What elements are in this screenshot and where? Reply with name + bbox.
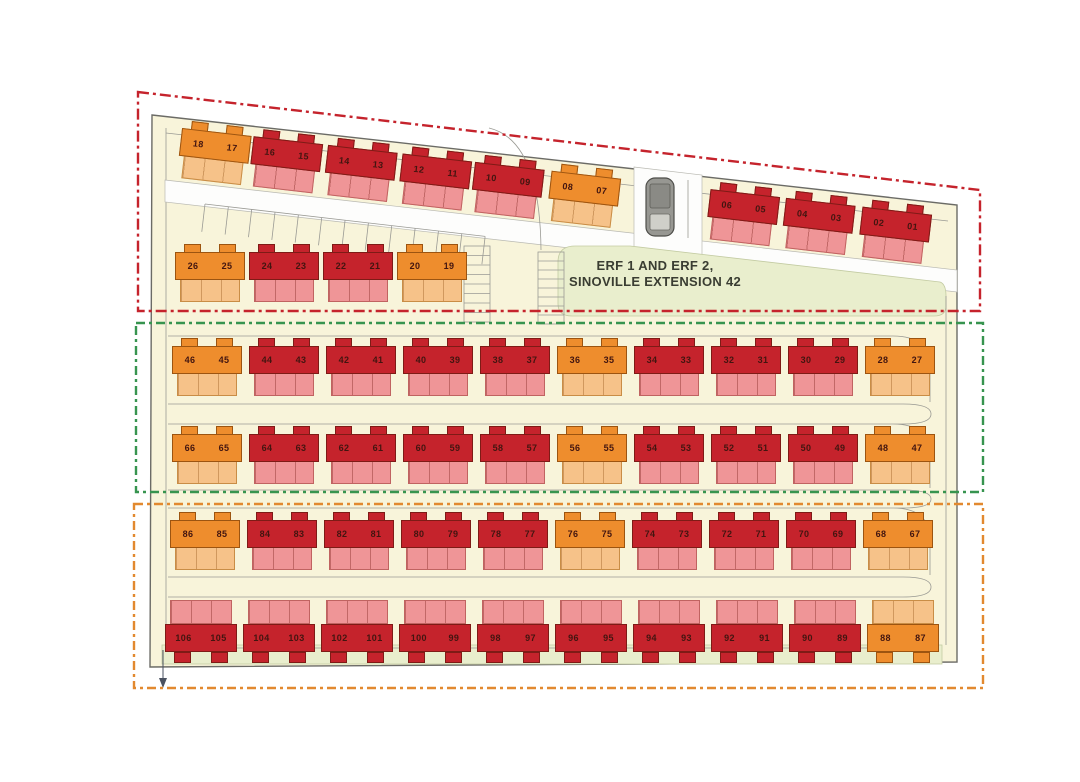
unit-number: 60 xyxy=(416,443,427,453)
unit-roof: 5453 xyxy=(634,434,704,462)
duplex-block-16-15: 1615 xyxy=(248,128,324,196)
unit-number: 69 xyxy=(833,529,844,539)
unit-roof: 106105 xyxy=(165,624,237,652)
unit-yard xyxy=(485,461,545,484)
duplex-block-06-05: 0605 xyxy=(705,181,781,249)
roof-bump-icon xyxy=(564,652,581,663)
unit-number: 10 xyxy=(485,172,497,183)
duplex-block-26-25: 2625 xyxy=(175,244,245,304)
unit-yard xyxy=(482,600,544,624)
duplex-block-46-45: 4645 xyxy=(172,338,242,398)
duplex-block-02-01: 0201 xyxy=(857,199,933,267)
unit-roof: 4645 xyxy=(172,346,242,374)
duplex-block-68-67: 6867 xyxy=(863,512,933,572)
unit-number: 65 xyxy=(219,443,230,453)
unit-number: 72 xyxy=(722,529,733,539)
unit-roof: 2625 xyxy=(175,252,245,280)
unit-roof: 6665 xyxy=(172,434,242,462)
unit-number: 102 xyxy=(331,633,347,643)
unit-number: 94 xyxy=(646,633,657,643)
erf-label-line2: SINOVILLE EXTENSION 42 xyxy=(505,274,805,290)
unit-number: 103 xyxy=(288,633,304,643)
unit-yard xyxy=(485,373,545,396)
unit-number: 18 xyxy=(192,138,204,149)
duplex-block-82-81: 8281 xyxy=(324,512,394,572)
duplex-block-78-77: 7877 xyxy=(478,512,548,572)
unit-number: 71 xyxy=(756,529,767,539)
duplex-block-86-85: 8685 xyxy=(170,512,240,572)
unit-yard xyxy=(254,279,314,302)
unit-number: 75 xyxy=(602,529,613,539)
duplex-block-40-39: 4039 xyxy=(403,338,473,398)
duplex-block-24-23: 2423 xyxy=(249,244,319,304)
roof-bump-icon xyxy=(720,652,737,663)
unit-roof: 8483 xyxy=(247,520,317,548)
roof-bump-icon xyxy=(876,652,893,663)
unit-number: 50 xyxy=(801,443,812,453)
unit-yard xyxy=(483,547,543,570)
unit-number: 34 xyxy=(647,355,658,365)
unit-number: 84 xyxy=(260,529,271,539)
unit-number: 83 xyxy=(294,529,305,539)
duplex-block-20-19: 2019 xyxy=(397,244,467,304)
unit-roof: 3231 xyxy=(711,346,781,374)
duplex-block-100-99: 10099 xyxy=(399,598,471,658)
unit-number: 93 xyxy=(681,633,692,643)
unit-number: 07 xyxy=(596,185,608,196)
unit-number: 11 xyxy=(447,168,458,179)
unit-yard xyxy=(175,547,235,570)
unit-number: 82 xyxy=(337,529,348,539)
unit-yard xyxy=(791,547,851,570)
unit-number: 79 xyxy=(448,529,459,539)
unit-number: 12 xyxy=(413,164,425,175)
duplex-block-64-63: 6463 xyxy=(249,426,319,486)
roof-bump-icon xyxy=(445,652,462,663)
duplex-block-52-51: 5251 xyxy=(711,426,781,486)
housing-row-row1L: 181716151413121110090807 xyxy=(176,120,183,182)
unit-number: 31 xyxy=(758,355,769,365)
unit-number: 58 xyxy=(493,443,504,453)
duplex-block-66-65: 6665 xyxy=(172,426,242,486)
erf-label: ERF 1 AND ERF 2, SINOVILLE EXTENSION 42 xyxy=(505,258,805,290)
duplex-block-76-75: 7675 xyxy=(555,512,625,572)
duplex-block-30-29: 3029 xyxy=(788,338,858,398)
unit-yard xyxy=(254,461,314,484)
duplex-block-10-09: 1009 xyxy=(469,154,545,222)
unit-number: 21 xyxy=(370,261,381,271)
duplex-block-28-27: 2827 xyxy=(865,338,935,398)
unit-number: 104 xyxy=(253,633,269,643)
unit-yard xyxy=(560,547,620,570)
duplex-block-36-35: 3635 xyxy=(557,338,627,398)
unit-number: 27 xyxy=(912,355,923,365)
unit-number: 95 xyxy=(603,633,614,643)
unit-roof: 8887 xyxy=(867,624,939,652)
unit-number: 92 xyxy=(724,633,735,643)
duplex-block-48-47: 4847 xyxy=(865,426,935,486)
duplex-block-98-97: 9897 xyxy=(477,598,549,658)
unit-roof: 9089 xyxy=(789,624,861,652)
unit-number: 36 xyxy=(570,355,581,365)
unit-roof: 5655 xyxy=(557,434,627,462)
unit-number: 101 xyxy=(366,633,382,643)
roof-bump-icon xyxy=(289,652,306,663)
unit-number: 96 xyxy=(568,633,579,643)
duplex-block-12-11: 1211 xyxy=(397,146,473,214)
unit-number: 63 xyxy=(296,443,307,453)
unit-yard xyxy=(177,373,237,396)
unit-roof: 9897 xyxy=(477,624,549,652)
duplex-block-88-87: 8887 xyxy=(867,598,939,658)
unit-yard xyxy=(331,461,391,484)
unit-yard xyxy=(331,373,391,396)
unit-number: 78 xyxy=(491,529,502,539)
unit-number: 05 xyxy=(755,203,767,214)
unit-number: 47 xyxy=(912,443,923,453)
unit-yard xyxy=(714,547,774,570)
unit-number: 20 xyxy=(410,261,421,271)
unit-yard xyxy=(870,461,930,484)
unit-roof: 2423 xyxy=(249,252,319,280)
unit-roof: 6867 xyxy=(863,520,933,548)
unit-roof: 7675 xyxy=(555,520,625,548)
unit-number: 77 xyxy=(525,529,536,539)
unit-roof: 9493 xyxy=(633,624,705,652)
unit-number: 45 xyxy=(219,355,230,365)
unit-roof: 104103 xyxy=(243,624,315,652)
unit-yard xyxy=(406,547,466,570)
unit-number: 85 xyxy=(217,529,228,539)
unit-number: 08 xyxy=(562,181,574,192)
roof-bump-icon xyxy=(757,652,774,663)
housing-rows-layer: 1817161514131211100908070605040302012625… xyxy=(0,0,1080,782)
unit-number: 06 xyxy=(721,199,733,210)
unit-number: 39 xyxy=(450,355,461,365)
unit-number: 100 xyxy=(411,633,427,643)
unit-yard xyxy=(402,279,462,302)
unit-roof: 4039 xyxy=(403,346,473,374)
unit-number: 57 xyxy=(527,443,538,453)
duplex-block-04-03: 0403 xyxy=(780,190,856,258)
unit-roof: 9291 xyxy=(711,624,783,652)
unit-number: 15 xyxy=(298,151,310,162)
unit-yard xyxy=(560,600,622,624)
duplex-block-44-43: 4443 xyxy=(249,338,319,398)
unit-number: 09 xyxy=(519,176,531,187)
unit-yard xyxy=(638,600,700,624)
unit-roof: 2019 xyxy=(397,252,467,280)
roof-bump-icon xyxy=(601,652,618,663)
unit-roof: 3029 xyxy=(788,346,858,374)
unit-yard xyxy=(716,461,776,484)
roof-bump-icon xyxy=(252,652,269,663)
unit-yard xyxy=(562,461,622,484)
unit-number: 02 xyxy=(873,217,885,228)
unit-roof: 8281 xyxy=(324,520,394,548)
duplex-block-34-33: 3433 xyxy=(634,338,704,398)
unit-roof: 5251 xyxy=(711,434,781,462)
roof-bump-icon xyxy=(211,652,228,663)
roof-bump-icon xyxy=(408,652,425,663)
unit-roof: 4847 xyxy=(865,434,935,462)
unit-number: 105 xyxy=(210,633,226,643)
duplex-block-18-17: 1817 xyxy=(176,120,252,188)
unit-number: 90 xyxy=(802,633,813,643)
unit-number: 44 xyxy=(262,355,273,365)
duplex-block-96-95: 9695 xyxy=(555,598,627,658)
unit-yard xyxy=(328,279,388,302)
unit-roof: 6261 xyxy=(326,434,396,462)
unit-yard xyxy=(639,461,699,484)
unit-number: 70 xyxy=(799,529,810,539)
unit-yard xyxy=(794,600,856,624)
unit-roof: 6059 xyxy=(403,434,473,462)
duplex-block-58-57: 5857 xyxy=(480,426,550,486)
unit-number: 76 xyxy=(568,529,579,539)
unit-number: 37 xyxy=(527,355,538,365)
duplex-block-42-41: 4241 xyxy=(326,338,396,398)
unit-number: 38 xyxy=(493,355,504,365)
unit-number: 48 xyxy=(878,443,889,453)
unit-yard xyxy=(716,600,778,624)
duplex-block-92-91: 9291 xyxy=(711,598,783,658)
unit-number: 86 xyxy=(183,529,194,539)
unit-number: 46 xyxy=(185,355,196,365)
unit-roof: 10099 xyxy=(399,624,471,652)
unit-yard xyxy=(329,547,389,570)
duplex-block-74-73: 7473 xyxy=(632,512,702,572)
unit-number: 67 xyxy=(910,529,921,539)
unit-yard xyxy=(868,547,928,570)
unit-number: 23 xyxy=(296,261,307,271)
unit-number: 89 xyxy=(837,633,848,643)
unit-yard xyxy=(408,373,468,396)
duplex-block-60-59: 6059 xyxy=(403,426,473,486)
unit-roof: 2827 xyxy=(865,346,935,374)
unit-number: 66 xyxy=(185,443,196,453)
unit-number: 19 xyxy=(444,261,455,271)
unit-number: 25 xyxy=(222,261,233,271)
roof-bump-icon xyxy=(330,652,347,663)
unit-number: 13 xyxy=(372,159,384,170)
roof-bump-icon xyxy=(642,652,659,663)
unit-yard xyxy=(170,600,232,624)
unit-number: 55 xyxy=(604,443,615,453)
duplex-block-62-61: 6261 xyxy=(326,426,396,486)
roof-bump-icon xyxy=(913,652,930,663)
unit-number: 33 xyxy=(681,355,692,365)
duplex-block-22-21: 2221 xyxy=(323,244,393,304)
unit-number: 29 xyxy=(835,355,846,365)
unit-roof: 8685 xyxy=(170,520,240,548)
roof-bump-icon xyxy=(798,652,815,663)
unit-number: 88 xyxy=(880,633,891,643)
unit-roof: 6463 xyxy=(249,434,319,462)
unit-number: 22 xyxy=(336,261,347,271)
unit-yard xyxy=(252,547,312,570)
unit-number: 62 xyxy=(339,443,350,453)
roof-bump-icon xyxy=(367,652,384,663)
unit-yard xyxy=(180,279,240,302)
unit-number: 40 xyxy=(416,355,427,365)
unit-number: 91 xyxy=(759,633,770,643)
unit-roof: 7877 xyxy=(478,520,548,548)
unit-yard xyxy=(872,600,934,624)
unit-number: 56 xyxy=(570,443,581,453)
unit-yard xyxy=(716,373,776,396)
duplex-block-38-37: 3837 xyxy=(480,338,550,398)
unit-number: 68 xyxy=(876,529,887,539)
unit-number: 98 xyxy=(490,633,501,643)
unit-number: 73 xyxy=(679,529,690,539)
unit-yard xyxy=(408,461,468,484)
unit-roof: 5049 xyxy=(788,434,858,462)
roof-bump-icon xyxy=(835,652,852,663)
unit-yard xyxy=(639,373,699,396)
duplex-block-72-71: 7271 xyxy=(709,512,779,572)
unit-yard xyxy=(248,600,310,624)
duplex-block-54-53: 5453 xyxy=(634,426,704,486)
unit-roof: 3635 xyxy=(557,346,627,374)
unit-roof: 4443 xyxy=(249,346,319,374)
unit-number: 99 xyxy=(448,633,459,643)
unit-number: 53 xyxy=(681,443,692,453)
unit-roof: 102101 xyxy=(321,624,393,652)
unit-number: 59 xyxy=(450,443,461,453)
unit-number: 64 xyxy=(262,443,273,453)
duplex-block-80-79: 8079 xyxy=(401,512,471,572)
roof-bump-icon xyxy=(486,652,503,663)
unit-number: 24 xyxy=(262,261,273,271)
roof-bump-icon xyxy=(523,652,540,663)
unit-yard xyxy=(254,373,314,396)
unit-roof: 4241 xyxy=(326,346,396,374)
duplex-block-106-105: 106105 xyxy=(165,598,237,658)
unit-number: 32 xyxy=(724,355,735,365)
unit-number: 16 xyxy=(264,147,276,158)
site-plan-canvas: 1817161514131211100908070605040302012625… xyxy=(0,0,1080,782)
unit-yard xyxy=(562,373,622,396)
duplex-block-32-31: 3231 xyxy=(711,338,781,398)
unit-yard xyxy=(793,461,853,484)
unit-yard xyxy=(404,600,466,624)
unit-number: 81 xyxy=(371,529,382,539)
unit-number: 30 xyxy=(801,355,812,365)
duplex-block-90-89: 9089 xyxy=(789,598,861,658)
unit-roof: 7473 xyxy=(632,520,702,548)
unit-number: 52 xyxy=(724,443,735,453)
duplex-block-102-101: 102101 xyxy=(321,598,393,658)
duplex-block-94-93: 9493 xyxy=(633,598,705,658)
unit-yard xyxy=(793,373,853,396)
unit-roof: 3837 xyxy=(480,346,550,374)
roof-bump-icon xyxy=(174,652,191,663)
unit-number: 28 xyxy=(878,355,889,365)
unit-roof: 9695 xyxy=(555,624,627,652)
unit-yard xyxy=(177,461,237,484)
duplex-block-50-49: 5049 xyxy=(788,426,858,486)
roof-bump-icon xyxy=(679,652,696,663)
unit-number: 106 xyxy=(175,633,191,643)
unit-number: 87 xyxy=(915,633,926,643)
unit-number: 74 xyxy=(645,529,656,539)
duplex-block-104-103: 104103 xyxy=(243,598,315,658)
unit-number: 14 xyxy=(338,155,350,166)
unit-yard xyxy=(870,373,930,396)
duplex-block-08-07: 0807 xyxy=(546,163,622,231)
unit-number: 43 xyxy=(296,355,307,365)
unit-number: 35 xyxy=(604,355,615,365)
unit-number: 17 xyxy=(226,142,238,153)
duplex-block-56-55: 5655 xyxy=(557,426,627,486)
duplex-block-14-13: 1413 xyxy=(322,137,398,205)
duplex-block-84-83: 8483 xyxy=(247,512,317,572)
unit-roof: 2221 xyxy=(323,252,393,280)
unit-number: 01 xyxy=(907,221,919,232)
unit-number: 61 xyxy=(373,443,384,453)
unit-number: 42 xyxy=(339,355,350,365)
erf-label-line1: ERF 1 AND ERF 2, xyxy=(505,258,805,274)
unit-roof: 7271 xyxy=(709,520,779,548)
unit-number: 41 xyxy=(373,355,384,365)
unit-number: 51 xyxy=(758,443,769,453)
unit-roof: 5857 xyxy=(480,434,550,462)
unit-number: 97 xyxy=(525,633,536,643)
unit-roof: 8079 xyxy=(401,520,471,548)
unit-roof: 7069 xyxy=(786,520,856,548)
unit-number: 80 xyxy=(414,529,425,539)
unit-number: 54 xyxy=(647,443,658,453)
unit-number: 03 xyxy=(830,212,842,223)
unit-number: 04 xyxy=(796,208,808,219)
unit-number: 26 xyxy=(188,261,199,271)
unit-yard xyxy=(637,547,697,570)
unit-roof: 3433 xyxy=(634,346,704,374)
unit-yard xyxy=(326,600,388,624)
duplex-block-70-69: 7069 xyxy=(786,512,856,572)
unit-number: 49 xyxy=(835,443,846,453)
